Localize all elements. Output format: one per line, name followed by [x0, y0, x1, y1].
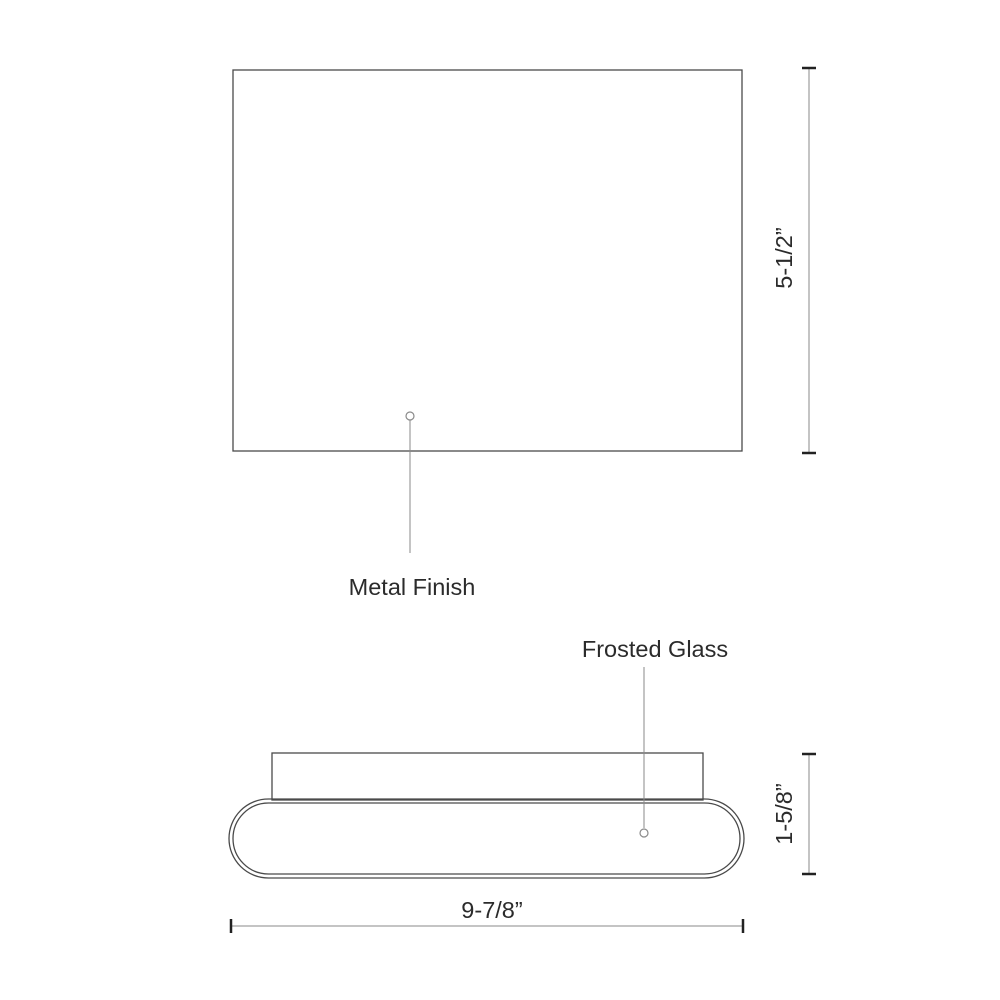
side-view-diffuser-inner-outline: [233, 803, 740, 874]
metal-finish-marker-dot: [406, 412, 414, 420]
side-view-housing-outline: [272, 753, 703, 800]
dimension-drawing: Metal Finish 5-1/2” Frosted Glass: [0, 0, 1000, 1000]
side-width-dimension-label: 9-7/8”: [461, 897, 522, 923]
front-height-dimension-label: 5-1/2”: [771, 227, 797, 288]
metal-finish-label: Metal Finish: [349, 574, 476, 600]
side-depth-dimension: 1-5/8”: [771, 754, 816, 874]
front-view-outline: [233, 70, 742, 451]
front-height-dimension: 5-1/2”: [771, 68, 816, 453]
frosted-glass-marker-dot: [640, 829, 648, 837]
side-width-dimension: 9-7/8”: [231, 897, 743, 933]
side-view: Frosted Glass: [229, 636, 744, 878]
front-view: Metal Finish: [233, 70, 742, 600]
frosted-glass-label: Frosted Glass: [582, 636, 728, 662]
side-view-diffuser-outer-outline: [229, 799, 744, 878]
spec-sheet-page: Metal Finish 5-1/2” Frosted Glass: [0, 0, 1000, 1000]
side-depth-dimension-label: 1-5/8”: [771, 783, 797, 844]
